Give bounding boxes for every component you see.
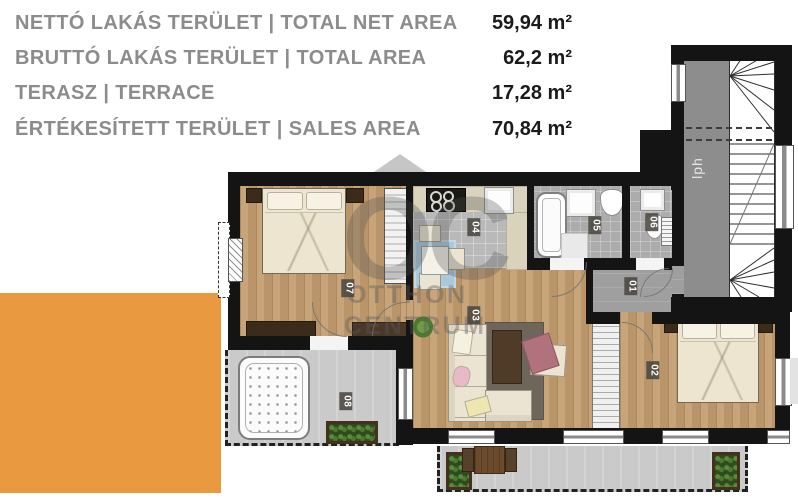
window <box>563 430 624 444</box>
pillow <box>267 192 303 210</box>
window <box>662 430 709 444</box>
bed-02 <box>677 317 759 403</box>
area-row-value: 62,2 m² <box>430 47 572 70</box>
room-label-08: 08 <box>340 392 353 410</box>
window <box>398 368 413 420</box>
area-row-label: ÉRTÉKESÍTETT TERÜLET | SALES AREA <box>15 118 445 141</box>
wardrobe-02 <box>592 320 620 430</box>
watermark-line1: OTTHON <box>347 281 468 310</box>
floorplan-page: NETTÓ LAKÁS TERÜLET | TOTAL NET AREA 59,… <box>0 0 798 500</box>
wall <box>775 227 792 307</box>
wall <box>775 45 792 145</box>
wall <box>527 186 534 262</box>
planter <box>712 452 740 490</box>
window <box>448 430 495 444</box>
bathroom-sink <box>566 189 596 217</box>
window-sill <box>790 358 798 404</box>
jacuzzi <box>238 356 310 440</box>
window <box>767 430 790 444</box>
area-row-label: NETTÓ LAKÁS TERÜLET | TOTAL NET AREA <box>15 12 445 35</box>
bath-mat <box>561 233 588 260</box>
area-row-value: 70,84 m² <box>430 118 572 141</box>
planter <box>326 421 378 444</box>
coffee-table <box>492 330 522 384</box>
room-label-03: 03 <box>468 306 481 324</box>
wall <box>586 312 790 324</box>
orange-brand-block <box>0 293 221 493</box>
room-label-05: 05 <box>589 216 602 234</box>
window <box>775 145 794 229</box>
staircase <box>729 58 775 298</box>
room-label-01: 01 <box>625 277 638 295</box>
outdoor-table <box>474 446 505 474</box>
roof-skylight <box>374 154 426 172</box>
area-row-label: TERASZ | TERRACE <box>15 82 445 105</box>
bed-07 <box>262 188 346 274</box>
area-row-label: BRUTTÓ LAKÁS TERÜLET | TOTAL AREA <box>15 47 445 70</box>
room-label-06: 06 <box>646 213 659 231</box>
entry-door-gap <box>672 266 684 294</box>
duvet <box>680 341 756 400</box>
nightstand <box>246 188 262 203</box>
terrace-door-sill <box>310 336 348 350</box>
wall <box>586 258 593 316</box>
sofa-chaise <box>485 390 532 422</box>
section-cut-line <box>686 127 772 129</box>
room-label-04: 04 <box>468 218 481 236</box>
wall <box>671 297 792 312</box>
kitchen-counter-side <box>506 212 529 270</box>
window <box>228 238 243 282</box>
area-row-value: 17,28 m² <box>430 82 572 105</box>
wall <box>671 45 792 61</box>
bench <box>505 448 517 472</box>
wall <box>622 186 630 262</box>
jacuzzi-inner <box>245 363 303 433</box>
area-row-value: 59,94 m² <box>430 12 572 35</box>
stairwell-label: lph <box>689 157 705 179</box>
pillow <box>306 192 342 210</box>
duvet <box>265 212 343 271</box>
room-label-07: 07 <box>342 279 355 297</box>
wall <box>640 130 684 186</box>
window <box>671 64 686 102</box>
watermark-line2: CENTRUM <box>344 312 487 341</box>
bench <box>462 448 474 472</box>
wc-sink <box>640 189 665 211</box>
section-cut-line <box>686 139 772 141</box>
room-label-02: 02 <box>647 361 660 379</box>
